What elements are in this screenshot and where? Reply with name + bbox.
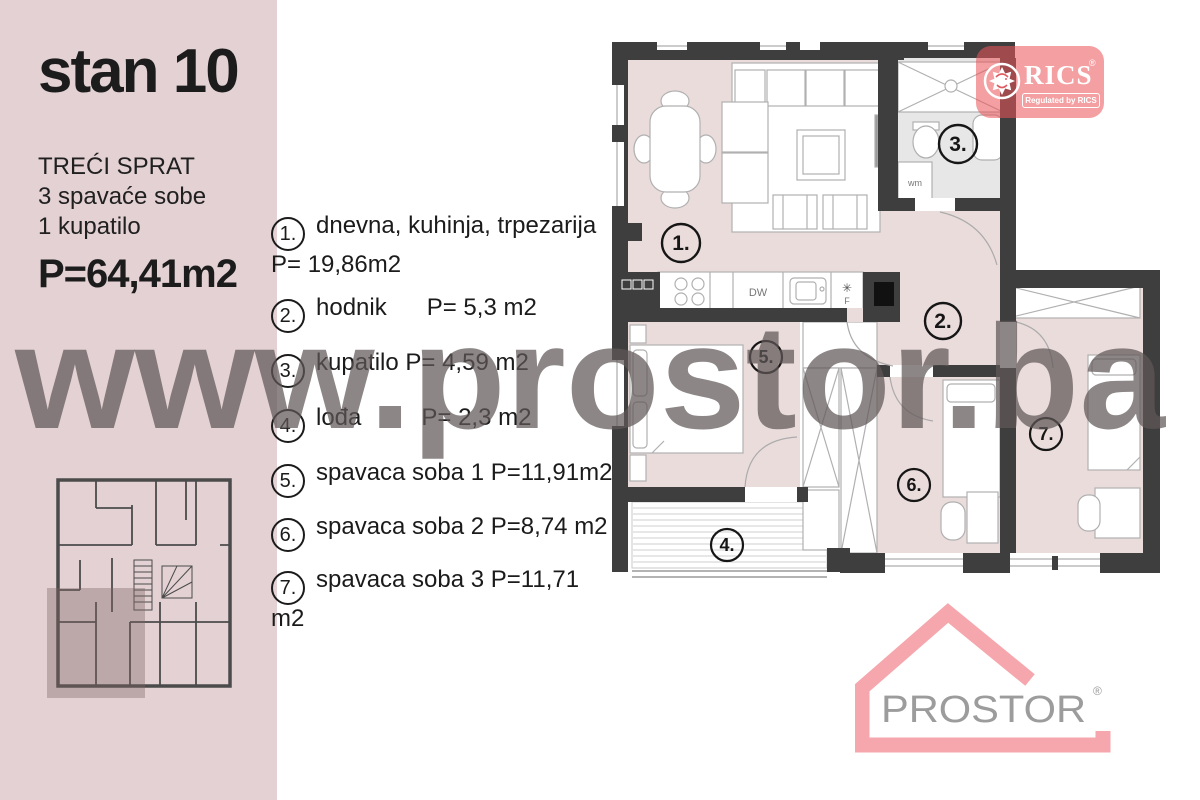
svg-text:2.: 2.	[934, 310, 952, 333]
prostor-registered-mark: ®	[1093, 684, 1102, 698]
loggia-railing	[632, 571, 827, 577]
nightstand	[630, 325, 646, 343]
legend-item-2: 2.hodnik P= 5,3 m2	[271, 294, 616, 333]
stove	[675, 278, 687, 290]
legend-item-3: 3.kupatilo P= 4,59 m2	[271, 349, 616, 388]
total-area-label: P=64,41m2	[38, 252, 237, 297]
legend-num-3: 3.	[271, 354, 305, 388]
svg-text:4.: 4.	[719, 535, 734, 555]
legend-label-7: spavaca soba 3 P=11,71 m2	[271, 566, 579, 632]
legend-num-6: 6.	[271, 518, 305, 552]
apartment-info: TREĆI SPRAT 3 spavaće sobe 1 kupatilo	[38, 152, 206, 242]
bathrooms-label: 1 kupatilo	[38, 212, 206, 242]
chair	[941, 502, 965, 540]
desk	[967, 492, 998, 543]
legend-num-7: 7.	[271, 571, 305, 605]
fridge-label: F	[844, 296, 850, 306]
legend-item-4: 4.lođa P= 2,3 m2	[271, 404, 616, 443]
tv	[875, 115, 878, 167]
bedrooms-label: 3 spavaće sobe	[38, 182, 206, 212]
legend-label-2: hodnik P= 5,3 m2	[316, 294, 537, 321]
prostor-logo: PROSTOR ®	[855, 600, 1175, 765]
svg-text:5.: 5.	[758, 347, 773, 367]
key-plan	[40, 470, 250, 710]
fridge-block	[874, 282, 894, 306]
legend-num-1: 1.	[271, 217, 305, 251]
dishwasher-label: DW	[749, 287, 768, 299]
svg-text:1.: 1.	[672, 232, 690, 255]
rics-registered-mark: ®	[1089, 58, 1096, 68]
armchair	[773, 195, 817, 229]
washbasin	[973, 115, 1003, 160]
svg-text:7.: 7.	[1038, 424, 1053, 444]
legend-label-3: kupatilo P= 4,59 m2	[316, 349, 529, 376]
legend-item-5: 5.spavaca soba 1 P=11,91m2	[271, 459, 616, 498]
bathroom-door-opening	[915, 198, 955, 211]
legend-label-4: lođa P= 2,3 m2	[316, 404, 531, 431]
legend-item-7: 7.spavaca soba 3 P=11,71 m2	[271, 566, 616, 633]
legend-label-1: dnevna, kuhinja, trpezarija P= 19,86m2	[271, 212, 596, 278]
bedroom3-door-opening	[1000, 322, 1016, 368]
rics-name: RICS	[1024, 60, 1093, 91]
legend-item-6: 6.spavaca soba 2 P=8,74 m2	[271, 513, 616, 552]
desk	[1095, 488, 1140, 538]
rics-lion-icon	[982, 58, 1022, 104]
legend-num-2: 2.	[271, 299, 305, 333]
chair	[1078, 495, 1100, 531]
floor-label: TREĆI SPRAT	[38, 152, 206, 182]
legend-item-1: 1.dnevna, kuhinja, trpezarija P= 19,86m2	[271, 212, 616, 279]
nightstand	[630, 455, 646, 481]
sofa-set	[722, 63, 880, 232]
bedroom2-door-opening	[890, 365, 933, 377]
legend-num-5: 5.	[271, 464, 305, 498]
armchair	[823, 195, 867, 229]
rics-badge: RICS ® Regulated by RICS	[976, 46, 1104, 118]
key-plan-apartment-highlight	[47, 588, 145, 698]
legend: 1.dnevna, kuhinja, trpezarija P= 19,86m2…	[271, 0, 616, 800]
prostor-name: PROSTOR	[881, 689, 1086, 731]
svg-text:6.: 6.	[906, 475, 921, 495]
washing-machine-label: wm	[907, 178, 922, 188]
rics-tagline: Regulated by RICS	[1022, 93, 1100, 108]
svg-text:3.: 3.	[949, 133, 967, 156]
loggia-door-opening	[745, 487, 797, 502]
apartment-title: stan 10	[38, 36, 238, 107]
freezer-icon: ✳	[842, 281, 852, 295]
flyer-page: stan 10 TREĆI SPRAT 3 spavaće sobe 1 kup…	[0, 0, 1200, 800]
bed-single-2	[941, 380, 1000, 543]
legend-num-4: 4.	[271, 409, 305, 443]
legend-label-5: spavaca soba 1 P=11,91m2	[316, 459, 612, 486]
legend-label-6: spavaca soba 2 P=8,74 m2	[316, 513, 608, 540]
sidebar: stan 10 TREĆI SPRAT 3 spavaće sobe 1 kup…	[0, 0, 277, 800]
